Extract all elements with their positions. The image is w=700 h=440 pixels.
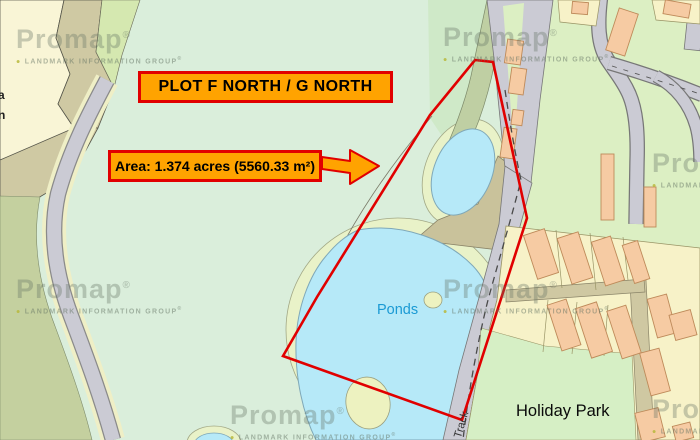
- building: [644, 187, 656, 227]
- building: [511, 109, 524, 125]
- area-annotation[interactable]: Area: 1.374 acres (5560.33 m²): [108, 150, 322, 182]
- building: [572, 1, 589, 14]
- building: [601, 154, 614, 220]
- map-graphics: [0, 0, 700, 440]
- ponds-label: Ponds: [377, 302, 418, 318]
- holiday-park-label: Holiday Park: [516, 402, 610, 421]
- plot-title-annotation[interactable]: PLOT F NORTH / G NORTH: [138, 71, 393, 103]
- left-edge-text-fragment: a: [0, 88, 5, 102]
- left-edge-text-fragment: n: [0, 108, 5, 122]
- pond-island-small: [424, 292, 442, 308]
- building: [508, 67, 526, 95]
- building: [504, 39, 523, 65]
- map-canvas[interactable]: PLOT F NORTH / G NORTH Area: 1.374 acres…: [0, 0, 700, 440]
